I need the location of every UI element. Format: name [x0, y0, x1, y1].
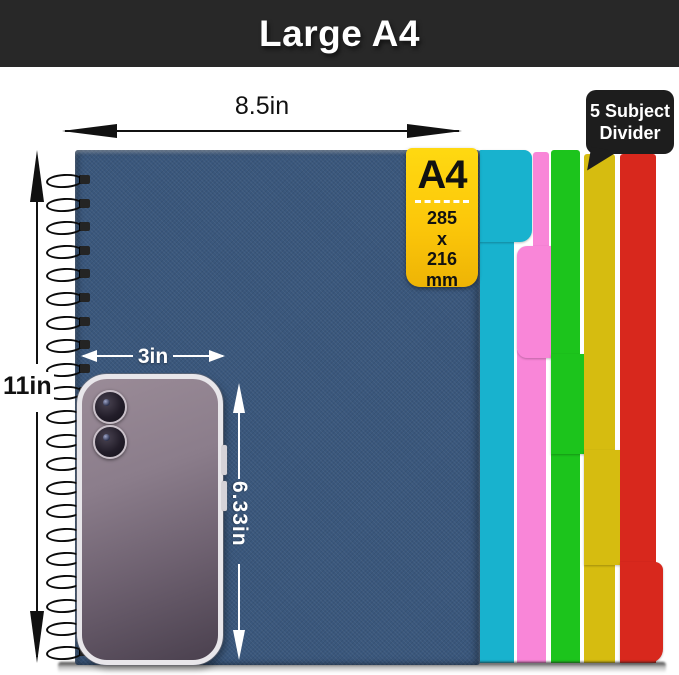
notebook-width-arrow [62, 124, 462, 138]
size-mm-x: x [406, 229, 478, 250]
binding-loop [46, 174, 90, 185]
notebook-height-label: 11in [1, 372, 54, 401]
wire-clip [79, 222, 90, 231]
arrowhead-right-icon [173, 355, 223, 357]
binding-loop [46, 221, 90, 232]
notebook-height-arrow [29, 150, 44, 663]
phone-width-label: 3in [138, 346, 168, 367]
product-image: Large A4 8.5in 11in A4 285 [0, 0, 679, 675]
divider-pink [533, 152, 549, 252]
arrowhead-up-icon [30, 150, 44, 202]
phone-camera-icon [93, 425, 127, 459]
size-mm-unit: mm [406, 270, 478, 291]
callout-line2: Divider [599, 122, 660, 145]
arrowhead-right-icon [407, 124, 462, 138]
divider-pink [517, 350, 546, 663]
wire-clip [79, 175, 90, 184]
phone-image [77, 374, 223, 665]
binding-loop [46, 316, 90, 327]
phone-camera-icon [93, 390, 127, 424]
binding-loop [46, 268, 90, 279]
binding-loop [46, 292, 90, 303]
title-banner: Large A4 [0, 0, 679, 67]
arrowhead-left-icon [62, 124, 117, 138]
wire-clip [79, 317, 90, 326]
binding-loop [46, 198, 90, 209]
phone-width-arrow: 3in [83, 345, 223, 367]
wire-clip [79, 199, 90, 208]
wire-clip [79, 269, 90, 278]
arrowhead-left-icon [83, 355, 133, 357]
a4-size-tag: A4 285 x 216 mm [406, 148, 478, 287]
divider-red-tab [620, 562, 663, 663]
phone-height-label: 6.33in [227, 481, 251, 547]
paper-format-label: A4 [406, 154, 478, 196]
arrow-line [65, 130, 459, 132]
binding-loop [46, 245, 90, 256]
arrow-line [238, 393, 240, 479]
wire-clip [79, 293, 90, 302]
phone-height-arrow: 6.33in [229, 383, 249, 660]
arrowhead-down-icon [30, 611, 44, 663]
wire-clip [79, 246, 90, 255]
divider-callout-bubble: 5 Subject Divider [586, 90, 674, 154]
size-mm-height: 216 [406, 249, 478, 270]
callout-line1: 5 Subject [590, 100, 670, 123]
callout-tail-icon [587, 147, 618, 175]
size-mm-width: 285 [406, 208, 478, 229]
dashed-divider [415, 200, 469, 203]
arrowhead-down-icon [233, 630, 245, 660]
divider-yellow [584, 154, 615, 663]
page-title: Large A4 [259, 13, 420, 55]
notebook-width-label: 8.5in [62, 92, 462, 121]
phone-side-button [222, 445, 227, 475]
divider-cyan-tab [478, 150, 532, 242]
